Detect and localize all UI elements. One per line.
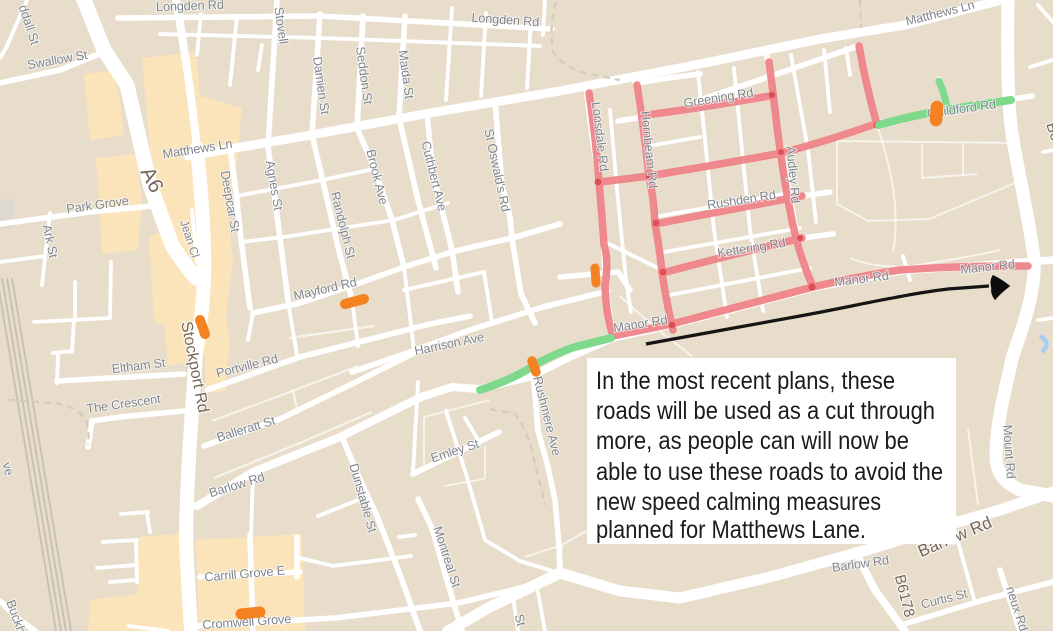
svg-text:able to use these roads to avo: able to use these roads to avoid the	[596, 458, 943, 486]
svg-text:In the most recent plans, thes: In the most recent plans, these	[596, 367, 895, 395]
svg-text:roads will be used as a cut th: roads will be used as a cut through	[596, 397, 935, 425]
svg-text:more, as people can will now b: more, as people can will now be	[596, 427, 909, 455]
svg-text:planned for Matthews Lane.: planned for Matthews Lane.	[596, 516, 866, 544]
svg-text:new speed calming measures: new speed calming measures	[596, 488, 881, 516]
svg-text:Longden Rd: Longden Rd	[156, 0, 224, 14]
